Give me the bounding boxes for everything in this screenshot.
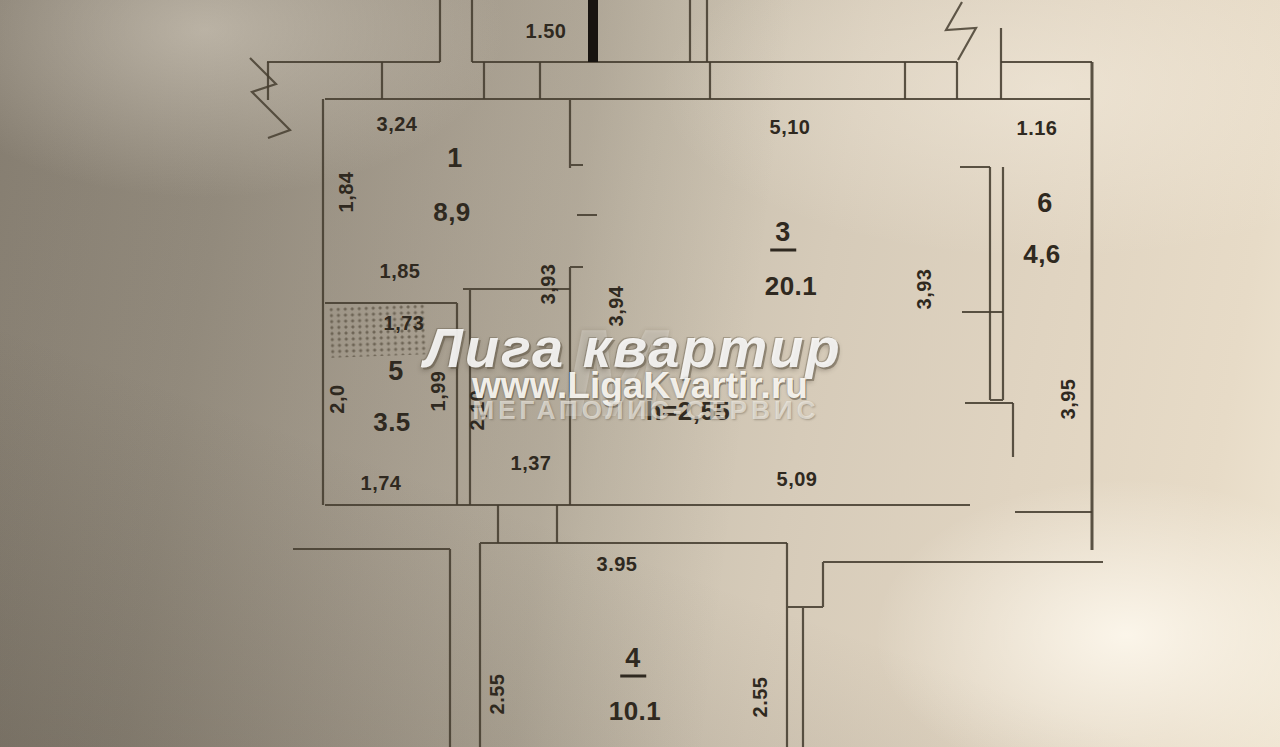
dimension-label: 1.50: [526, 20, 567, 43]
room-area-label: 10.1: [609, 696, 662, 727]
dimension-label: 3.95: [597, 553, 638, 576]
dimension-label: 1,74: [361, 472, 402, 495]
dimension-label: 1,73: [384, 312, 425, 335]
room-number-label: 3: [770, 217, 796, 252]
dimension-label: 5,10: [770, 116, 811, 139]
watermark-subtitle: МЕГАПОЛИС-СЕРВИС: [473, 395, 820, 426]
room-area-label: 8,9: [433, 197, 471, 228]
dimension-label: 3,95: [1057, 379, 1080, 420]
floorplan-photo: 1.503,245,101.161,841,851,732,01,992,103…: [0, 0, 1280, 747]
dimension-label: 3,93: [913, 269, 936, 310]
dimension-label: 2,0: [326, 384, 349, 413]
room-number-label: 6: [1037, 188, 1053, 219]
room-area-label: 3.5: [373, 407, 411, 438]
dimension-label: 1,84: [335, 172, 358, 213]
dimension-label: 2.55: [749, 677, 772, 718]
dimension-label: 1.16: [1017, 117, 1058, 140]
dimension-label: 3,93: [537, 264, 560, 305]
dimension-label: 5,09: [777, 468, 818, 491]
room-area-label: 4,6: [1023, 239, 1061, 270]
dimension-label: 3,24: [377, 113, 418, 136]
room-number-label: 1: [447, 143, 463, 174]
dimension-label: 1,37: [511, 452, 552, 475]
dimension-label: 1,85: [380, 260, 421, 283]
room-number-label: 4: [620, 643, 646, 678]
room-number-label: 5: [388, 356, 404, 387]
room-area-label: 20.1: [765, 271, 818, 302]
dimension-label: 2.55: [486, 674, 509, 715]
entrance-mark: [588, 0, 598, 62]
wall-break-symbol-right: [946, 2, 976, 60]
wall-break-symbol-left: [250, 58, 290, 138]
